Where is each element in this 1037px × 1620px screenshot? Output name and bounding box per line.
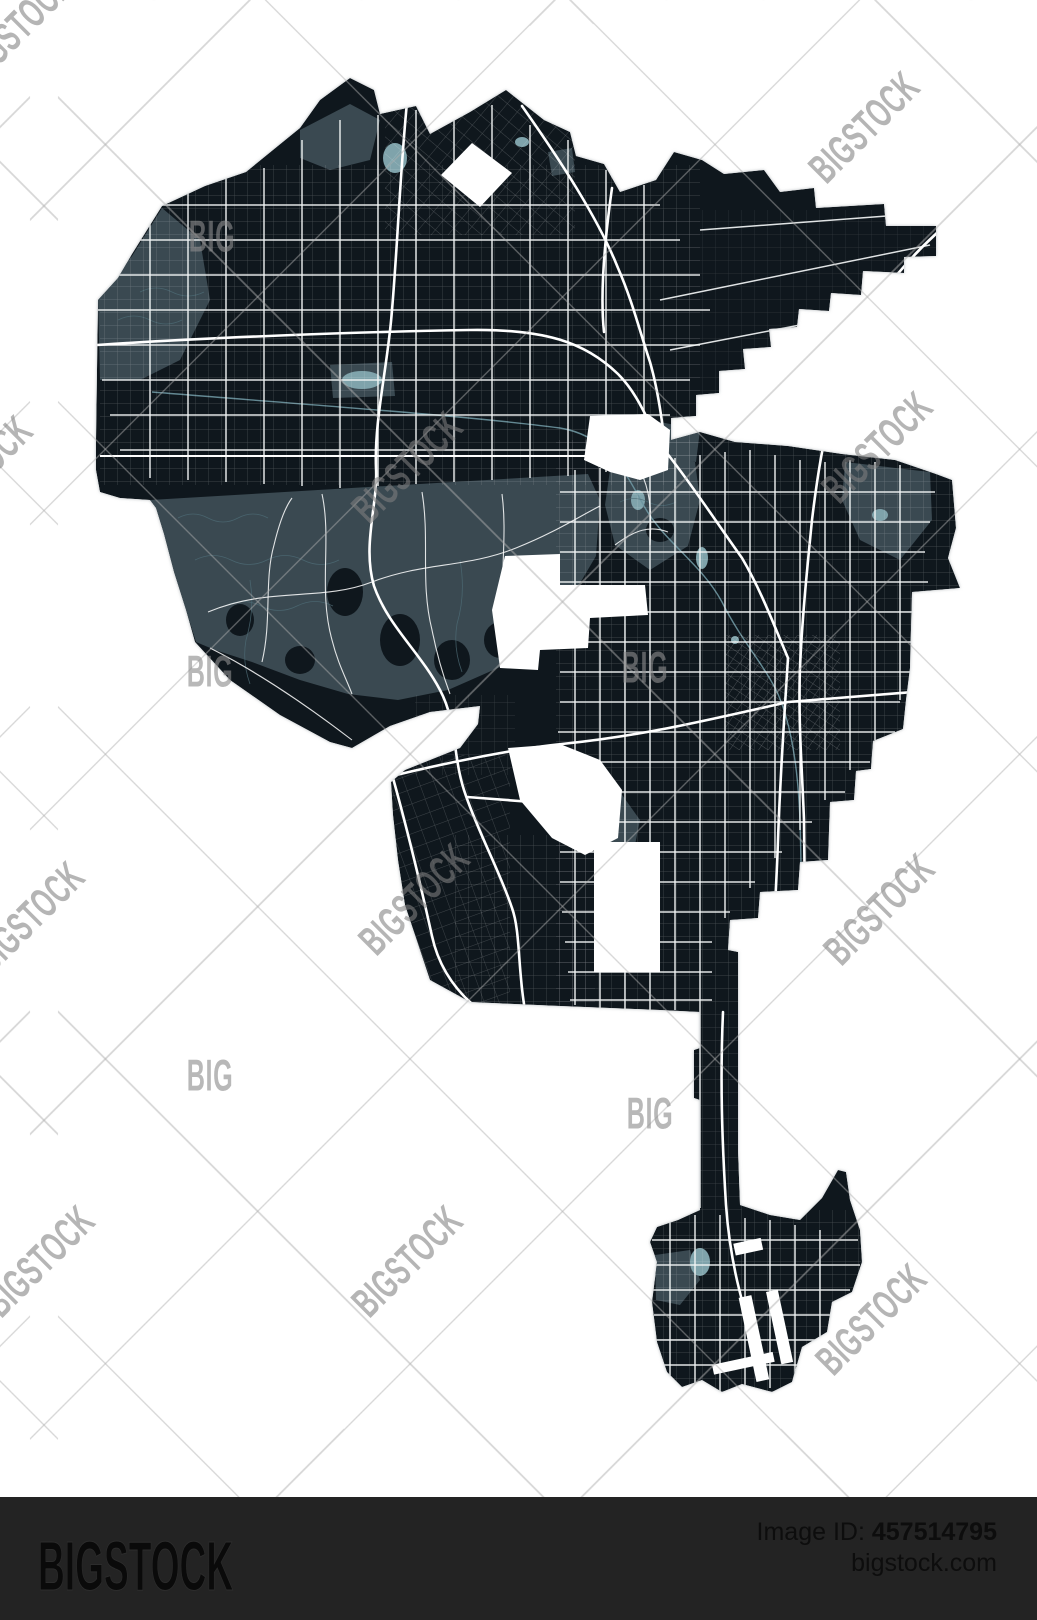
stock-image-preview: BIGSTOCK BIGSTOCK BIGSTOCK BIGSTOCK BIGS… [0, 0, 1037, 1620]
image-id-line: Image ID: 457514795 [757, 1517, 997, 1548]
image-id-label: Image ID: [757, 1518, 865, 1546]
image-meta: Image ID: 457514795 bigstock.com [757, 1517, 997, 1579]
preview-footer-bar: BIGSTOCK Image ID: 457514795 bigstock.co… [0, 1497, 1037, 1620]
site-domain: bigstock.com [757, 1548, 997, 1579]
bigstock-logo: BIGSTOCK [38, 1531, 233, 1601]
image-id-value: 457514795 [872, 1518, 997, 1546]
la-city-map-graphic [0, 0, 1037, 1620]
